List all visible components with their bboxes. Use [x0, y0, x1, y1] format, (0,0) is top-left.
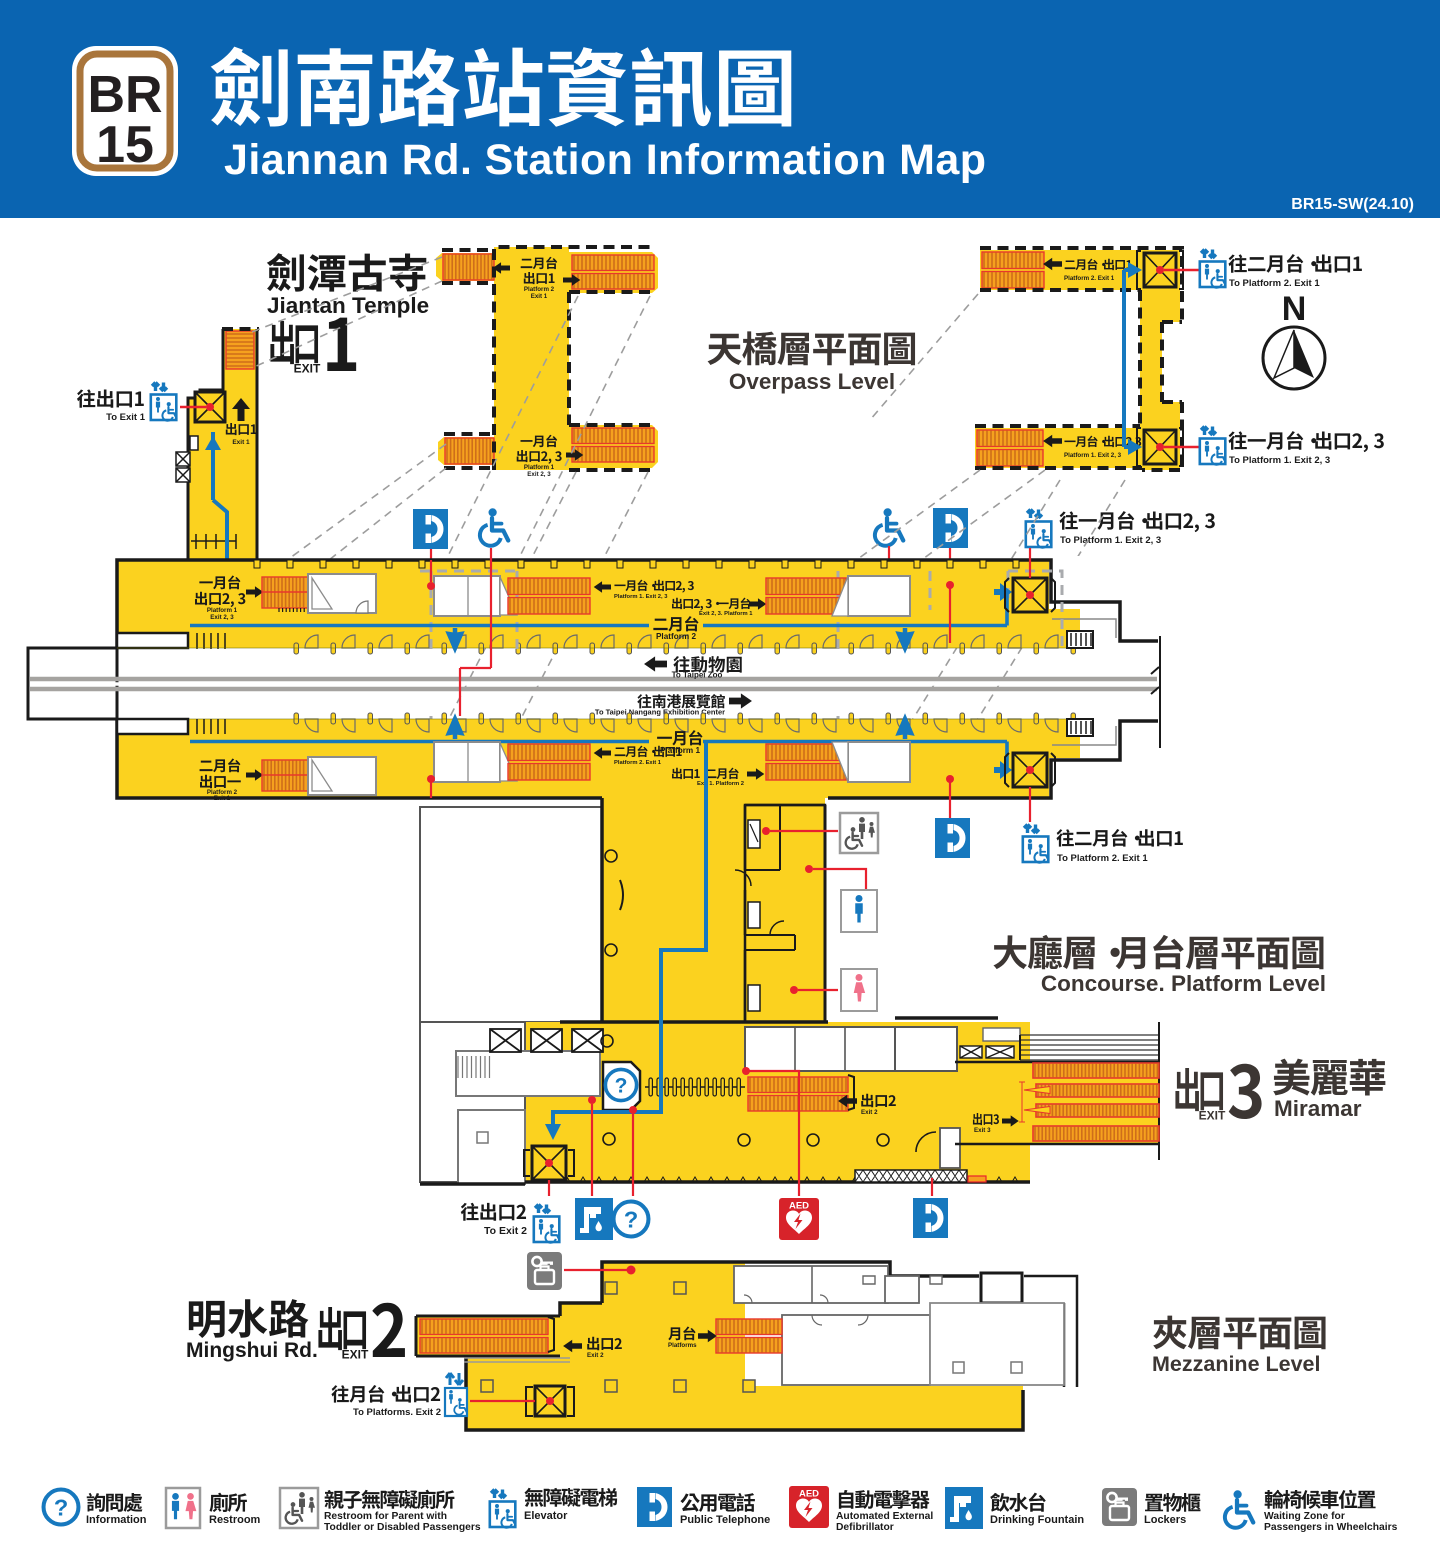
svg-text:Mezzanine Level: Mezzanine Level — [1152, 1352, 1320, 1376]
svg-text:Miramar: Miramar — [1274, 1096, 1362, 1121]
svg-text:Information: Information — [86, 1514, 147, 1526]
svg-text:To Platform 2. Exit 1: To Platform 2. Exit 1 — [1229, 278, 1320, 289]
svg-text:Drinking Fountain: Drinking Fountain — [990, 1514, 1084, 1526]
svg-text:Platforms: Platforms — [668, 1342, 697, 1349]
svg-text:N: N — [1282, 290, 1307, 328]
svg-text:Lockers: Lockers — [1144, 1514, 1186, 1526]
svg-text:Platform 1: Platform 1 — [207, 607, 238, 614]
svg-text:15: 15 — [96, 116, 154, 174]
svg-text:Exit 2: Exit 2 — [861, 1109, 878, 1116]
svg-text:Restroom: Restroom — [209, 1514, 261, 1526]
svg-text:Platform 2. Exit 1: Platform 2. Exit 1 — [1064, 275, 1115, 282]
svg-text:To Platform 2. Exit 1: To Platform 2. Exit 1 — [1057, 853, 1148, 864]
svg-text:Passengers in Wheelchairs: Passengers in Wheelchairs — [1264, 1522, 1398, 1533]
svg-text:Mingshui Rd.: Mingshui Rd. — [186, 1339, 318, 1362]
svg-text:To Exit 2: To Exit 2 — [484, 1225, 527, 1237]
svg-text:Concourse. Platform Level: Concourse. Platform Level — [1041, 971, 1326, 996]
svg-text:Defibrillator: Defibrillator — [836, 1522, 894, 1533]
svg-text:To Taipei Zoo: To Taipei Zoo — [672, 671, 723, 680]
svg-text:Jiannan Rd. Station Informatio: Jiannan Rd. Station Information Map — [224, 136, 986, 184]
svg-text:Exit 2, 3: Exit 2, 3 — [527, 471, 551, 478]
svg-text:EXIT: EXIT — [1199, 1109, 1226, 1123]
svg-text:Exit 1: Exit 1 — [232, 439, 250, 446]
svg-text:Exit 2: Exit 2 — [587, 1352, 604, 1359]
svg-text:Waiting Zone for: Waiting Zone for — [1264, 1511, 1345, 1522]
svg-text:Platform 1. Exit 2, 3: Platform 1. Exit 2, 3 — [614, 594, 668, 600]
svg-text:EXIT: EXIT — [294, 362, 321, 376]
svg-text:Jiantan Temple: Jiantan Temple — [267, 293, 429, 318]
svg-text:Toddler or Disabled Passengers: Toddler or Disabled Passengers — [324, 1522, 481, 1533]
svg-text:Exit 1: Exit 1 — [214, 795, 231, 802]
svg-text:To Platforms. Exit 2: To Platforms. Exit 2 — [353, 1407, 441, 1418]
svg-text:Platform 2: Platform 2 — [524, 286, 555, 293]
svg-text:Elevator: Elevator — [524, 1510, 568, 1522]
svg-text:Automated External: Automated External — [836, 1511, 933, 1522]
svg-text:BR15-SW(24.10): BR15-SW(24.10) — [1291, 196, 1414, 213]
svg-text:Restroom for Parent with: Restroom for Parent with — [324, 1511, 447, 1522]
svg-text:Exit 2, 3: Exit 2, 3 — [210, 614, 234, 621]
svg-text:Public Telephone: Public Telephone — [680, 1514, 770, 1526]
svg-text:EXIT: EXIT — [342, 1348, 369, 1362]
svg-text:Platform 2: Platform 2 — [656, 632, 696, 641]
svg-text:To Exit 1: To Exit 1 — [106, 412, 146, 423]
svg-text:Platform 1: Platform 1 — [524, 464, 555, 471]
svg-text:Platform 1. Exit 2, 3: Platform 1. Exit 2, 3 — [1064, 452, 1122, 459]
svg-text:To Platform 1. Exit 2, 3: To Platform 1. Exit 2, 3 — [1060, 535, 1161, 546]
svg-text:Exit 1: Exit 1 — [531, 293, 548, 300]
svg-text:Exit 2, 3. Platform 1: Exit 2, 3. Platform 1 — [699, 611, 753, 617]
svg-text:To Platform 1. Exit 2, 3: To Platform 1. Exit 2, 3 — [1229, 455, 1330, 466]
svg-text:Platform 2. Exit 1: Platform 2. Exit 1 — [614, 760, 662, 766]
svg-text:Exit 3: Exit 3 — [974, 1127, 991, 1134]
svg-text:Overpass Level: Overpass Level — [729, 369, 895, 394]
